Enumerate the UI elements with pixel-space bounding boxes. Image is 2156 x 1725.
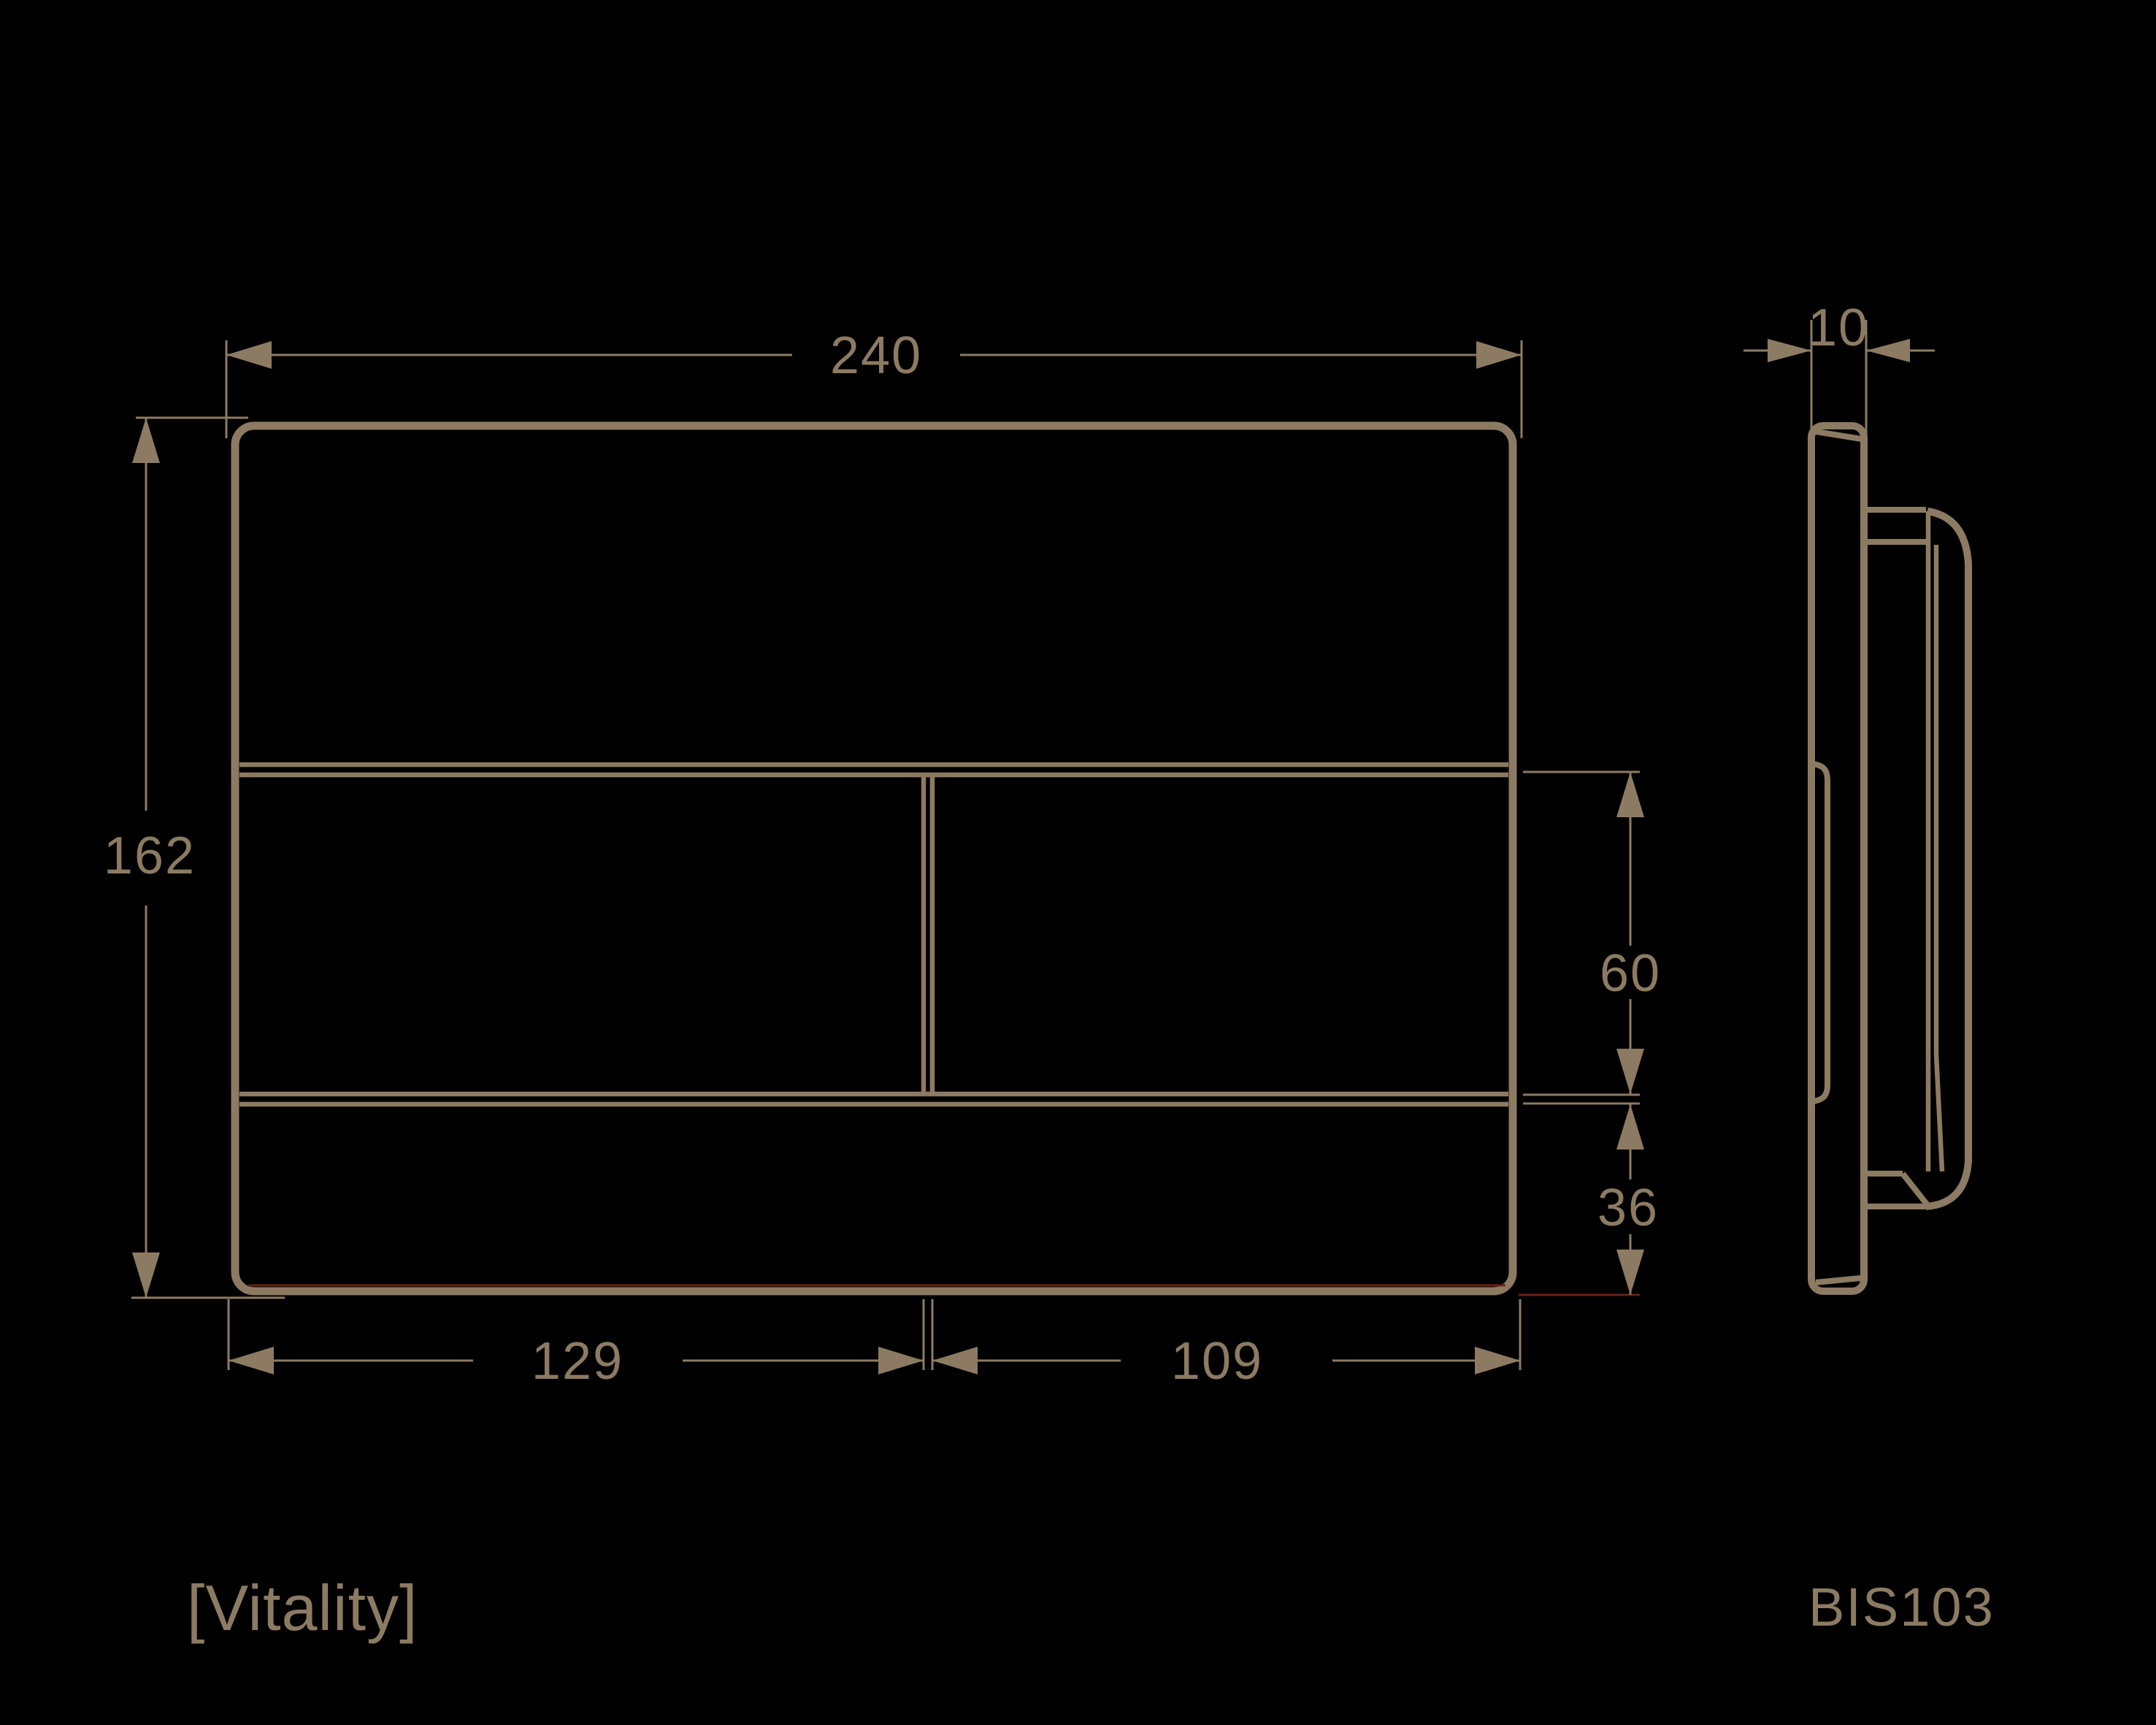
side-plate-outline	[1811, 426, 1864, 1291]
model-code-label: BIS103	[1808, 1577, 1995, 1637]
dimension-overall-width: 240	[226, 326, 1522, 438]
arrowhead-down	[1616, 1049, 1644, 1094]
collection-name-label: [Vitality]	[187, 1572, 418, 1644]
side-view	[1811, 426, 1968, 1291]
frame-back-panel	[1926, 511, 1968, 1206]
arrowhead-left	[226, 341, 272, 369]
actuation-rod-kink	[1936, 1055, 1942, 1171]
dimension-value-height: 162	[104, 827, 196, 885]
arrowhead-up	[1616, 1104, 1644, 1150]
dimension-value-right-button: 109	[1171, 1332, 1263, 1391]
plate-outline	[235, 426, 1513, 1291]
arrowhead-down	[1616, 1250, 1644, 1295]
dimension-overall-height: 162	[104, 418, 285, 1298]
front-view	[235, 426, 1513, 1291]
arrowhead-up	[1616, 772, 1644, 817]
dimension-value-left-button: 129	[532, 1332, 624, 1391]
dimension-value-button-row: 60	[1600, 944, 1661, 1003]
dimension-panel-depth: 10	[1743, 299, 1935, 438]
dimension-right-button-width: 109	[932, 1299, 1520, 1391]
arrowhead-left	[932, 1347, 978, 1374]
dimension-value-bottom-row: 36	[1597, 1179, 1659, 1237]
side-button-recess-line	[1814, 764, 1827, 1101]
side-plate-top-seam	[1816, 432, 1861, 439]
arrowhead-down	[132, 1252, 160, 1298]
arrowhead-left	[229, 1347, 274, 1374]
dimension-bottom-row-height: 36	[1519, 1104, 1659, 1295]
dimension-button-row-height: 60	[1523, 772, 1661, 1104]
arrowhead-right	[1768, 339, 1811, 362]
dimension-value-depth: 10	[1808, 299, 1869, 357]
bracket-bottom-diagonal	[1903, 1174, 1927, 1205]
side-plate-bottom-seam	[1816, 1278, 1861, 1282]
arrowhead-up	[132, 418, 160, 463]
arrowhead-left	[1866, 339, 1910, 362]
technical-drawing-flush-plate: 240 162 60 36 129	[0, 0, 2156, 1725]
arrowhead-right	[878, 1347, 924, 1374]
arrowhead-right	[1476, 341, 1522, 369]
dimension-left-button-width: 129	[229, 1299, 932, 1391]
arrowhead-right	[1475, 1347, 1520, 1374]
dimension-value-width: 240	[830, 326, 922, 385]
